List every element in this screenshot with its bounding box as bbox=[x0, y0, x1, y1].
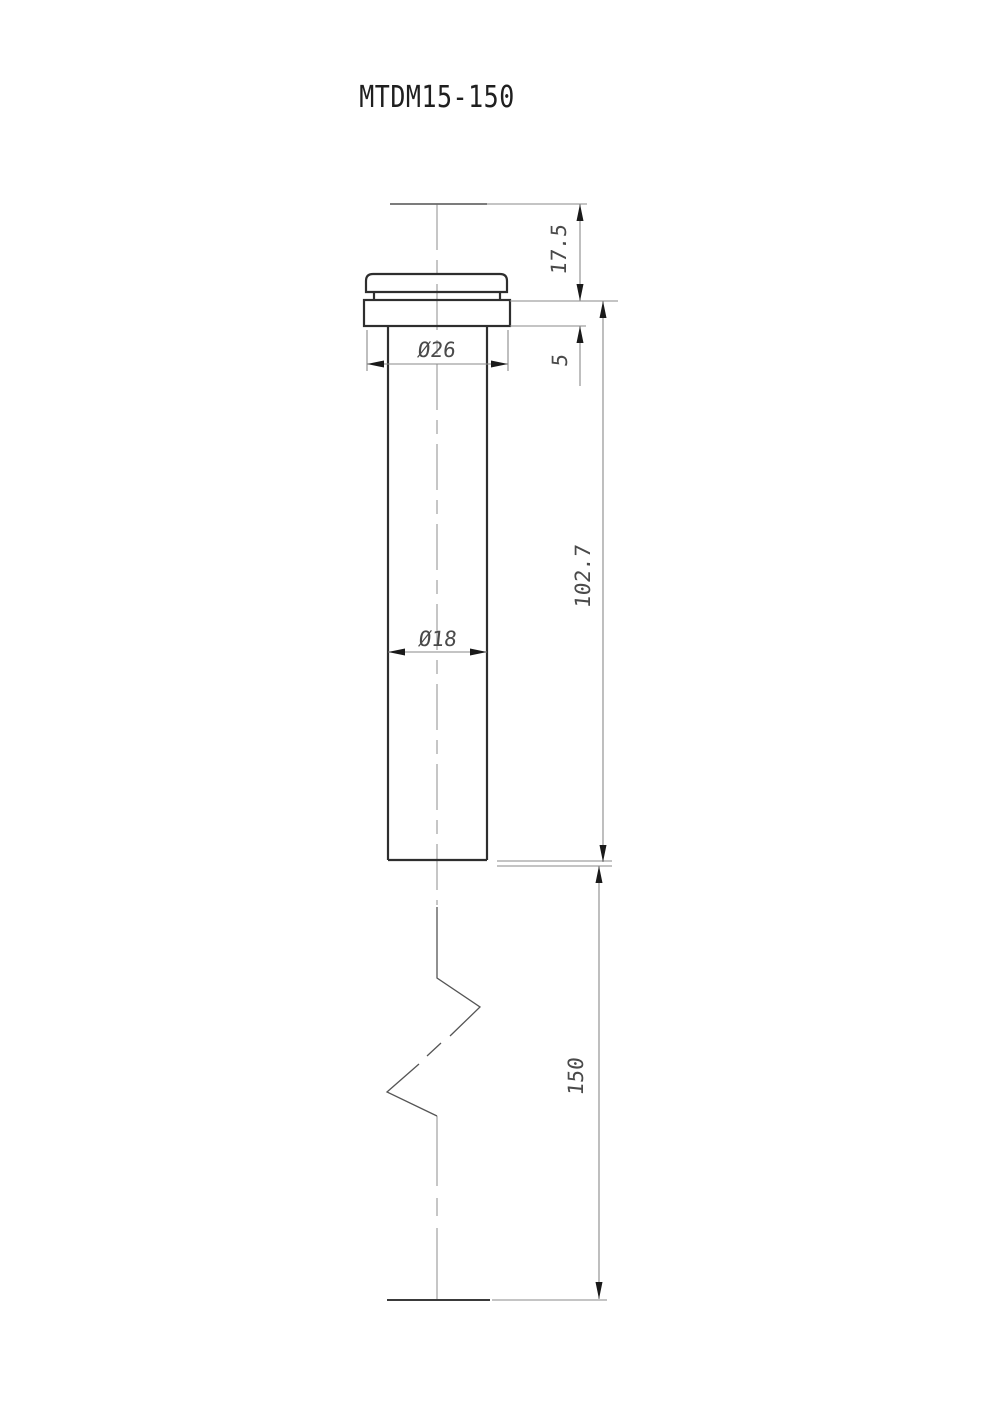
dimension-value-d18: Ø18 bbox=[418, 626, 459, 651]
arrow-left-icon bbox=[367, 361, 384, 368]
arrow-up-icon bbox=[577, 326, 584, 343]
drawing-canvas: MTDM15-150 bbox=[0, 0, 992, 1403]
dimension-150: 150 bbox=[492, 866, 607, 1300]
break-zigzag-upper bbox=[437, 907, 480, 1036]
dimension-value-102-7: 102.7 bbox=[570, 543, 595, 609]
break-symbol bbox=[387, 907, 480, 1116]
technical-drawing-page: MTDM15-150 bbox=[0, 0, 992, 1403]
dimension-value-d26: Ø26 bbox=[417, 337, 458, 362]
part-number-label: MTDM15-150 bbox=[359, 79, 514, 115]
dimension-dia-18: Ø18 bbox=[388, 626, 487, 655]
arrow-up-icon bbox=[577, 204, 584, 221]
arrow-down-icon bbox=[600, 845, 607, 862]
arrow-right-icon bbox=[470, 649, 487, 656]
break-zigzag-lower bbox=[387, 1064, 437, 1116]
break-dash-segment bbox=[427, 1043, 441, 1056]
drawing-title: MTDM15-150 bbox=[359, 79, 514, 115]
arrow-right-icon bbox=[491, 361, 508, 368]
dimension-value-5: 5 bbox=[547, 353, 572, 368]
dimension-value-150: 150 bbox=[563, 1056, 588, 1097]
arrow-up-icon bbox=[596, 866, 603, 883]
dimension-value-17-5: 17.5 bbox=[546, 223, 571, 276]
arrow-down-icon bbox=[577, 284, 584, 301]
arrow-left-icon bbox=[388, 649, 405, 656]
arrow-down-icon bbox=[596, 1282, 603, 1299]
arrow-up-icon bbox=[600, 301, 607, 318]
dimension-102-7: 102.7 bbox=[497, 301, 612, 866]
dimension-17-5: 17.5 bbox=[487, 204, 587, 301]
